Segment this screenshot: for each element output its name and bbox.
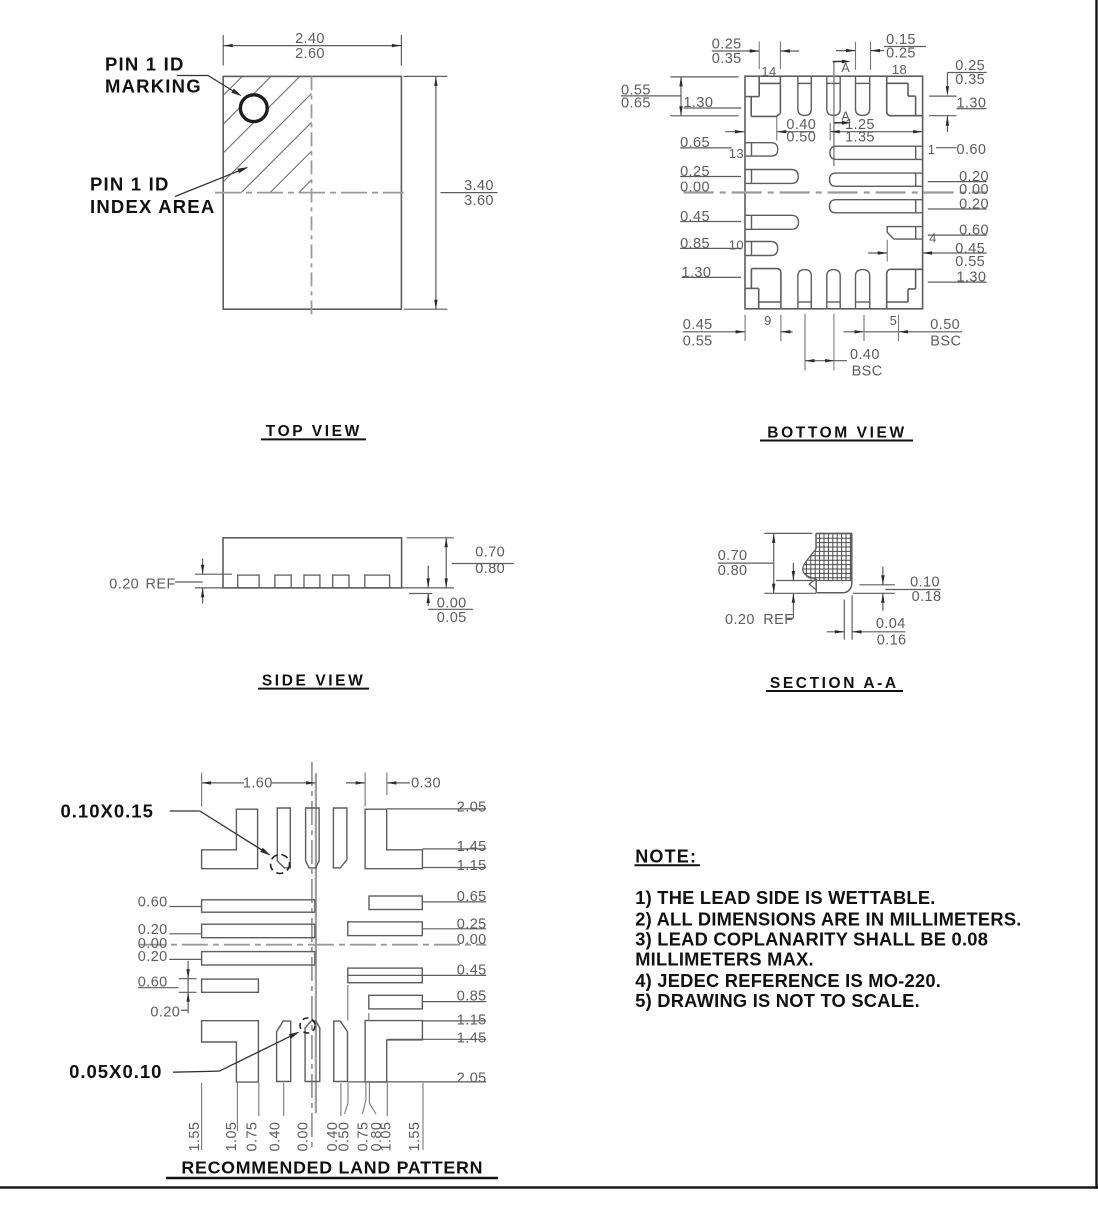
svg-text:0.00: 0.00	[680, 179, 710, 195]
svg-text:REF: REF	[146, 577, 176, 593]
svg-text:BSC: BSC	[930, 333, 961, 349]
svg-text:2.05: 2.05	[457, 1070, 487, 1086]
svg-text:SECTION A-A: SECTION A-A	[770, 675, 899, 692]
svg-text:2.60: 2.60	[295, 46, 325, 62]
svg-text:1.45: 1.45	[457, 839, 487, 855]
svg-text:PIN 1 ID: PIN 1 ID	[105, 53, 185, 74]
svg-text:TOP VIEW: TOP VIEW	[266, 423, 362, 440]
svg-text:MILLIMETERS MAX.: MILLIMETERS MAX.	[635, 949, 814, 970]
svg-text:A: A	[841, 61, 850, 75]
svg-text:0.25: 0.25	[680, 164, 710, 180]
svg-text:0.45: 0.45	[683, 317, 713, 333]
svg-text:2.05: 2.05	[457, 799, 487, 815]
svg-text:9: 9	[764, 313, 772, 328]
svg-text:0.80: 0.80	[475, 561, 505, 577]
svg-text:1: 1	[928, 142, 936, 157]
svg-text:1.55: 1.55	[187, 1122, 203, 1152]
svg-text:4) JEDEC REFERENCE IS MO-220.: 4) JEDEC REFERENCE IS MO-220.	[635, 970, 941, 991]
svg-text:1.30: 1.30	[684, 95, 714, 111]
svg-text:RECOMMENDED LAND PATTERN: RECOMMENDED LAND PATTERN	[181, 1158, 483, 1178]
svg-text:10: 10	[729, 237, 744, 252]
svg-text:4: 4	[929, 231, 937, 246]
svg-text:REF: REF	[763, 612, 793, 628]
svg-text:5) DRAWING IS NOT TO SCALE.: 5) DRAWING IS NOT TO SCALE.	[635, 990, 920, 1011]
svg-text:0.50: 0.50	[337, 1122, 353, 1152]
svg-text:0.20: 0.20	[109, 577, 139, 593]
svg-text:2) ALL DIMENSIONS ARE IN MILLI: 2) ALL DIMENSIONS ARE IN MILLIMETERS.	[635, 909, 1021, 930]
svg-text:PIN 1 ID: PIN 1 ID	[90, 173, 170, 194]
svg-text:0.50: 0.50	[930, 317, 960, 333]
svg-text:1) THE LEAD SIDE IS WETTABLE.: 1) THE LEAD SIDE IS WETTABLE.	[635, 887, 935, 908]
svg-text:0.65: 0.65	[621, 95, 651, 111]
svg-text:1.05: 1.05	[224, 1122, 240, 1152]
svg-text:1.15: 1.15	[457, 858, 487, 874]
svg-text:0.45: 0.45	[680, 209, 710, 225]
svg-text:1.45: 1.45	[457, 1031, 487, 1047]
svg-text:0.60: 0.60	[957, 142, 987, 158]
svg-text:3) LEAD COPLANARITY SHALL BE 0: 3) LEAD COPLANARITY SHALL BE 0.08	[635, 929, 988, 950]
svg-text:1.55: 1.55	[407, 1122, 423, 1152]
svg-text:NOTE:: NOTE:	[635, 846, 697, 866]
svg-text:INDEX AREA: INDEX AREA	[90, 196, 215, 217]
svg-text:0.70: 0.70	[718, 548, 748, 564]
svg-text:5: 5	[890, 313, 898, 328]
svg-text:0.20: 0.20	[138, 949, 168, 965]
svg-text:0.25: 0.25	[457, 916, 487, 932]
svg-text:0.05X0.10: 0.05X0.10	[69, 1061, 162, 1082]
svg-text:1.30: 1.30	[682, 265, 712, 281]
svg-text:13: 13	[729, 146, 744, 161]
svg-text:3.40: 3.40	[464, 178, 494, 194]
svg-text:0.00: 0.00	[296, 1122, 312, 1152]
svg-text:BOTTOM VIEW: BOTTOM VIEW	[767, 424, 906, 441]
svg-text:SIDE VIEW: SIDE VIEW	[262, 672, 366, 689]
svg-text:1.60: 1.60	[243, 776, 273, 792]
svg-text:1.05: 1.05	[379, 1122, 395, 1152]
svg-text:0.70: 0.70	[475, 545, 505, 561]
svg-text:MARKING: MARKING	[105, 76, 202, 97]
svg-text:0.35: 0.35	[955, 72, 985, 88]
svg-text:0.18: 0.18	[912, 589, 942, 605]
svg-text:0.80: 0.80	[718, 563, 748, 579]
svg-text:2.40: 2.40	[295, 31, 325, 47]
svg-text:0.40: 0.40	[267, 1122, 283, 1152]
svg-text:0.10X0.15: 0.10X0.15	[61, 800, 154, 821]
svg-text:0.55: 0.55	[955, 254, 985, 270]
svg-text:0.25: 0.25	[886, 46, 916, 62]
svg-text:0.60: 0.60	[959, 223, 989, 239]
svg-text:0.35: 0.35	[712, 51, 742, 67]
svg-text:0.20: 0.20	[150, 1005, 180, 1021]
svg-text:1.30: 1.30	[957, 270, 987, 286]
svg-text:0.40: 0.40	[850, 347, 880, 363]
svg-text:0.05: 0.05	[437, 610, 467, 626]
svg-text:0.00: 0.00	[457, 932, 487, 948]
svg-text:0.55: 0.55	[683, 333, 713, 349]
svg-text:0.16: 0.16	[877, 633, 907, 649]
svg-text:18: 18	[892, 62, 907, 77]
svg-text:0.85: 0.85	[680, 236, 710, 252]
svg-text:0.30: 0.30	[411, 776, 441, 792]
svg-text:0.75: 0.75	[244, 1122, 260, 1152]
svg-text:0.20: 0.20	[959, 197, 989, 213]
svg-text:0.20: 0.20	[725, 612, 755, 628]
svg-text:3.60: 3.60	[464, 193, 494, 209]
svg-text:0.65: 0.65	[457, 889, 487, 905]
svg-text:BSC: BSC	[852, 364, 883, 380]
svg-text:14: 14	[761, 64, 776, 79]
svg-text:0.65: 0.65	[680, 135, 710, 151]
svg-text:0.60: 0.60	[138, 894, 168, 910]
svg-text:0.04: 0.04	[876, 616, 906, 632]
